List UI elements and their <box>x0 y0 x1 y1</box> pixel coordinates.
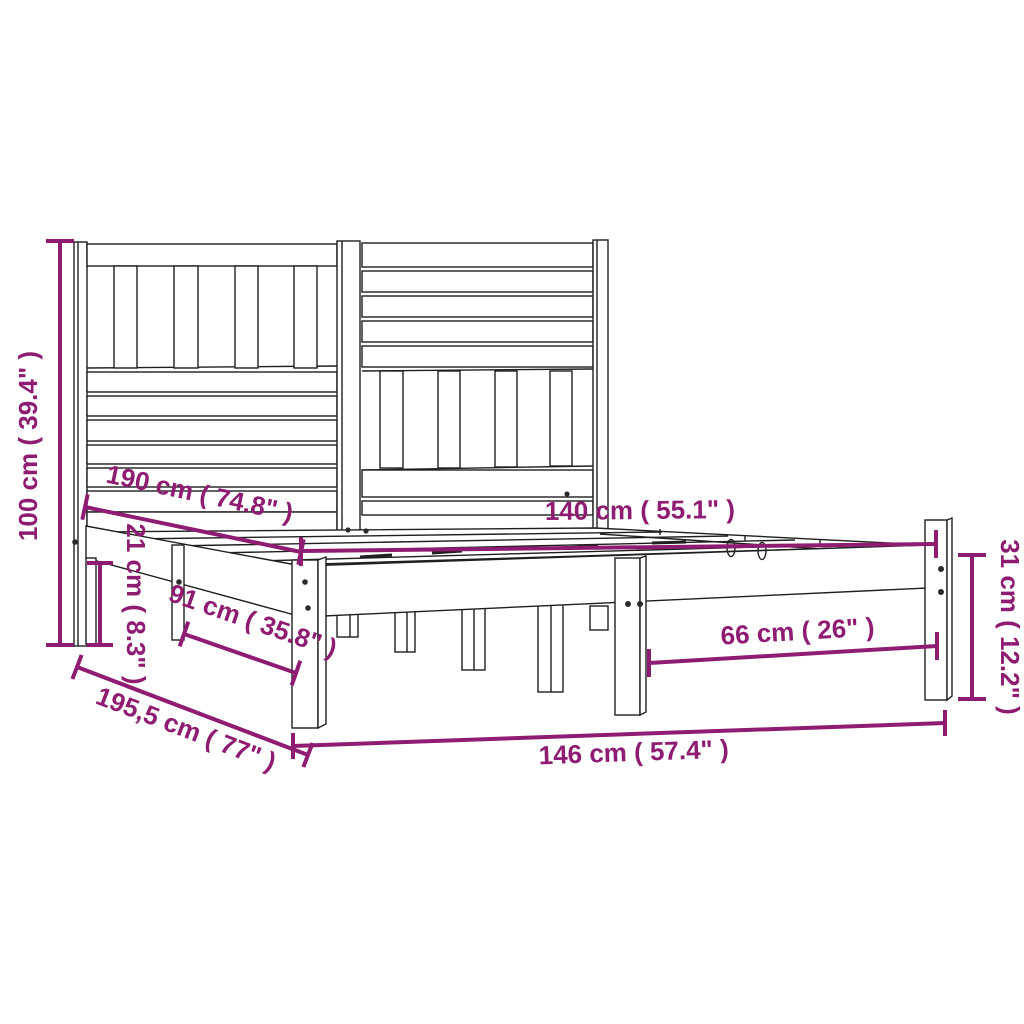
bed-frame-dimension-diagram: 100 cm ( 39.4" ) 21 cm ( 8.3" ) 190 cm (… <box>0 0 1024 1024</box>
headboard-right-post <box>593 240 608 530</box>
dimension-label-total-width: 146 cm ( 57.4" ) <box>538 734 729 771</box>
dimension-label-total-length: 195,5 cm ( 77" ) <box>92 681 280 777</box>
front-middle-leg <box>615 556 646 715</box>
product-image: 100 cm ( 39.4" ) 21 cm ( 8.3" ) 190 cm (… <box>0 0 1024 1024</box>
headboard-right-panel <box>362 243 593 515</box>
dimension-label-inner-width: 140 cm ( 55.1" ) <box>545 494 735 526</box>
dimension-total-length: 195,5 cm ( 77" ) <box>72 655 312 777</box>
dimension-label-front-leg-spacing: 66 cm ( 26" ) <box>720 611 875 650</box>
dimension-front-leg-spacing: 66 cm ( 26" ) <box>649 611 937 677</box>
dimension-total-width: 146 cm ( 57.4" ) <box>293 710 945 770</box>
dimension-foot-end-height: 31 cm ( 12.2" ) <box>958 539 1024 715</box>
headboard-center-post <box>337 241 360 545</box>
dimension-label-headboard-height: 100 cm ( 39.4" ) <box>13 351 43 541</box>
head-left-leg <box>86 558 96 644</box>
support-stub-legs <box>337 602 608 692</box>
dimension-label-foot-end-height: 31 cm ( 12.2" ) <box>995 539 1024 715</box>
headboard-left-post <box>74 242 87 646</box>
dimension-label-head-rail-height: 21 cm ( 8.3" ) <box>121 523 151 684</box>
dimension-headboard-height: 100 cm ( 39.4" ) <box>13 241 74 645</box>
